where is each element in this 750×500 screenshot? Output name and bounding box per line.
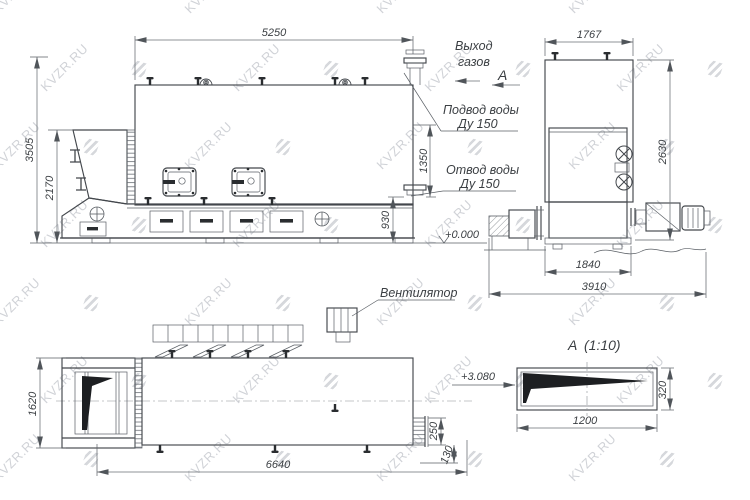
gas-outlet-label-1: Выход [455,39,493,53]
fan-label: Вентилятор [380,286,457,300]
plan-dimensions: 6640 1620 250 130 [27,358,467,476]
water-outlet-flange [404,185,426,195]
dim-detail-width: 1200 [573,415,598,427]
lifting-eye-left [90,207,104,221]
grate-drive-strip [153,325,303,358]
dim-plan-width: 1620 [27,391,39,416]
technical-drawing: 5250 3505 2170 1350 930 +0.000 [0,0,750,500]
detail-title-scale: (1:10) [584,337,621,353]
side-view: 5250 3505 2170 1350 930 +0.000 [24,27,520,243]
valve-upper-icon [616,146,632,162]
water-inlet-dn: Ду 150 [456,117,498,131]
dim-end-height: 2630 [657,139,669,165]
end-body [545,60,633,202]
water-inlet-label: Подвод воды [443,103,519,117]
dim-nozzle-span: 1350 [418,148,430,173]
gas-outlet-label-2: газов [458,55,490,69]
top-bolt-pins [146,77,368,85]
dim-height-overall: 3505 [24,137,36,162]
gas-outlet-flange [404,50,426,85]
side-dimensions: 5250 3505 2170 1350 930 +0.000 [24,27,480,243]
access-door-right [232,168,265,197]
valve-lower-icon [616,174,632,190]
detail-wedge [523,373,648,403]
water-outlet-label: Отвод воды [446,163,519,177]
dim-stub-height: 250 [428,421,440,441]
end-dimensions: 1767 2630 1840 3910 [489,29,706,298]
boiler-body [135,85,413,205]
dim-length-top: 5250 [262,27,287,39]
end-top-pins [551,52,610,60]
dim-outlet-height: 930 [380,210,392,229]
safety-valve-dome-left [200,79,212,85]
feeder-frame [62,358,135,448]
end-base-plate [545,238,631,244]
detail-view: А (1:10) 1200 320 +3.080 [452,337,674,432]
dim-detail-height: 320 [657,380,669,399]
drive-motor-assembly [631,203,710,231]
fuel-hopper [73,130,127,204]
frame-joint-strip [135,358,142,448]
door-lock-right [248,178,254,184]
fan-assembly-plan [327,308,357,342]
dim-base-width: 1840 [576,259,601,271]
section-arrow-letter: А [497,67,507,83]
base-panels [150,211,303,232]
door-lock-left [179,178,185,184]
level-mark-zero: +0.000 [445,229,480,241]
dim-height-hopper: 2170 [44,175,56,201]
safety-valve-dome-right [339,79,351,85]
lifting-eye-right [315,212,329,226]
foundation-feet [92,238,413,243]
ash-outlet-stub [413,416,428,447]
dim-stub-offset: 130 [438,443,456,465]
drawing-sheet: KVZR.RUKVZR.RUKVZR.RUKVZR.RUKVZR.RUKVZR.… [0,0,750,500]
dim-end-width-top: 1767 [577,29,602,41]
dim-overall-width: 3910 [582,281,607,293]
end-base [549,202,627,238]
draft-fan-assembly [484,206,546,250]
dim-plan-length: 6640 [266,459,291,471]
plan-bottom-pins [156,404,370,453]
hopper-hinges [70,150,86,190]
hopper-ladder-strip [127,130,135,204]
plan-body [142,358,413,445]
water-outlet-dn: Ду 150 [458,177,500,191]
break-line [594,249,706,254]
feeder-wedge [82,376,113,430]
plan-view: Вентилятор 6640 [27,286,472,476]
access-door-left [163,168,196,197]
detail-title-letter: А [567,337,577,353]
detail-level-mark: +3.080 [461,371,496,383]
